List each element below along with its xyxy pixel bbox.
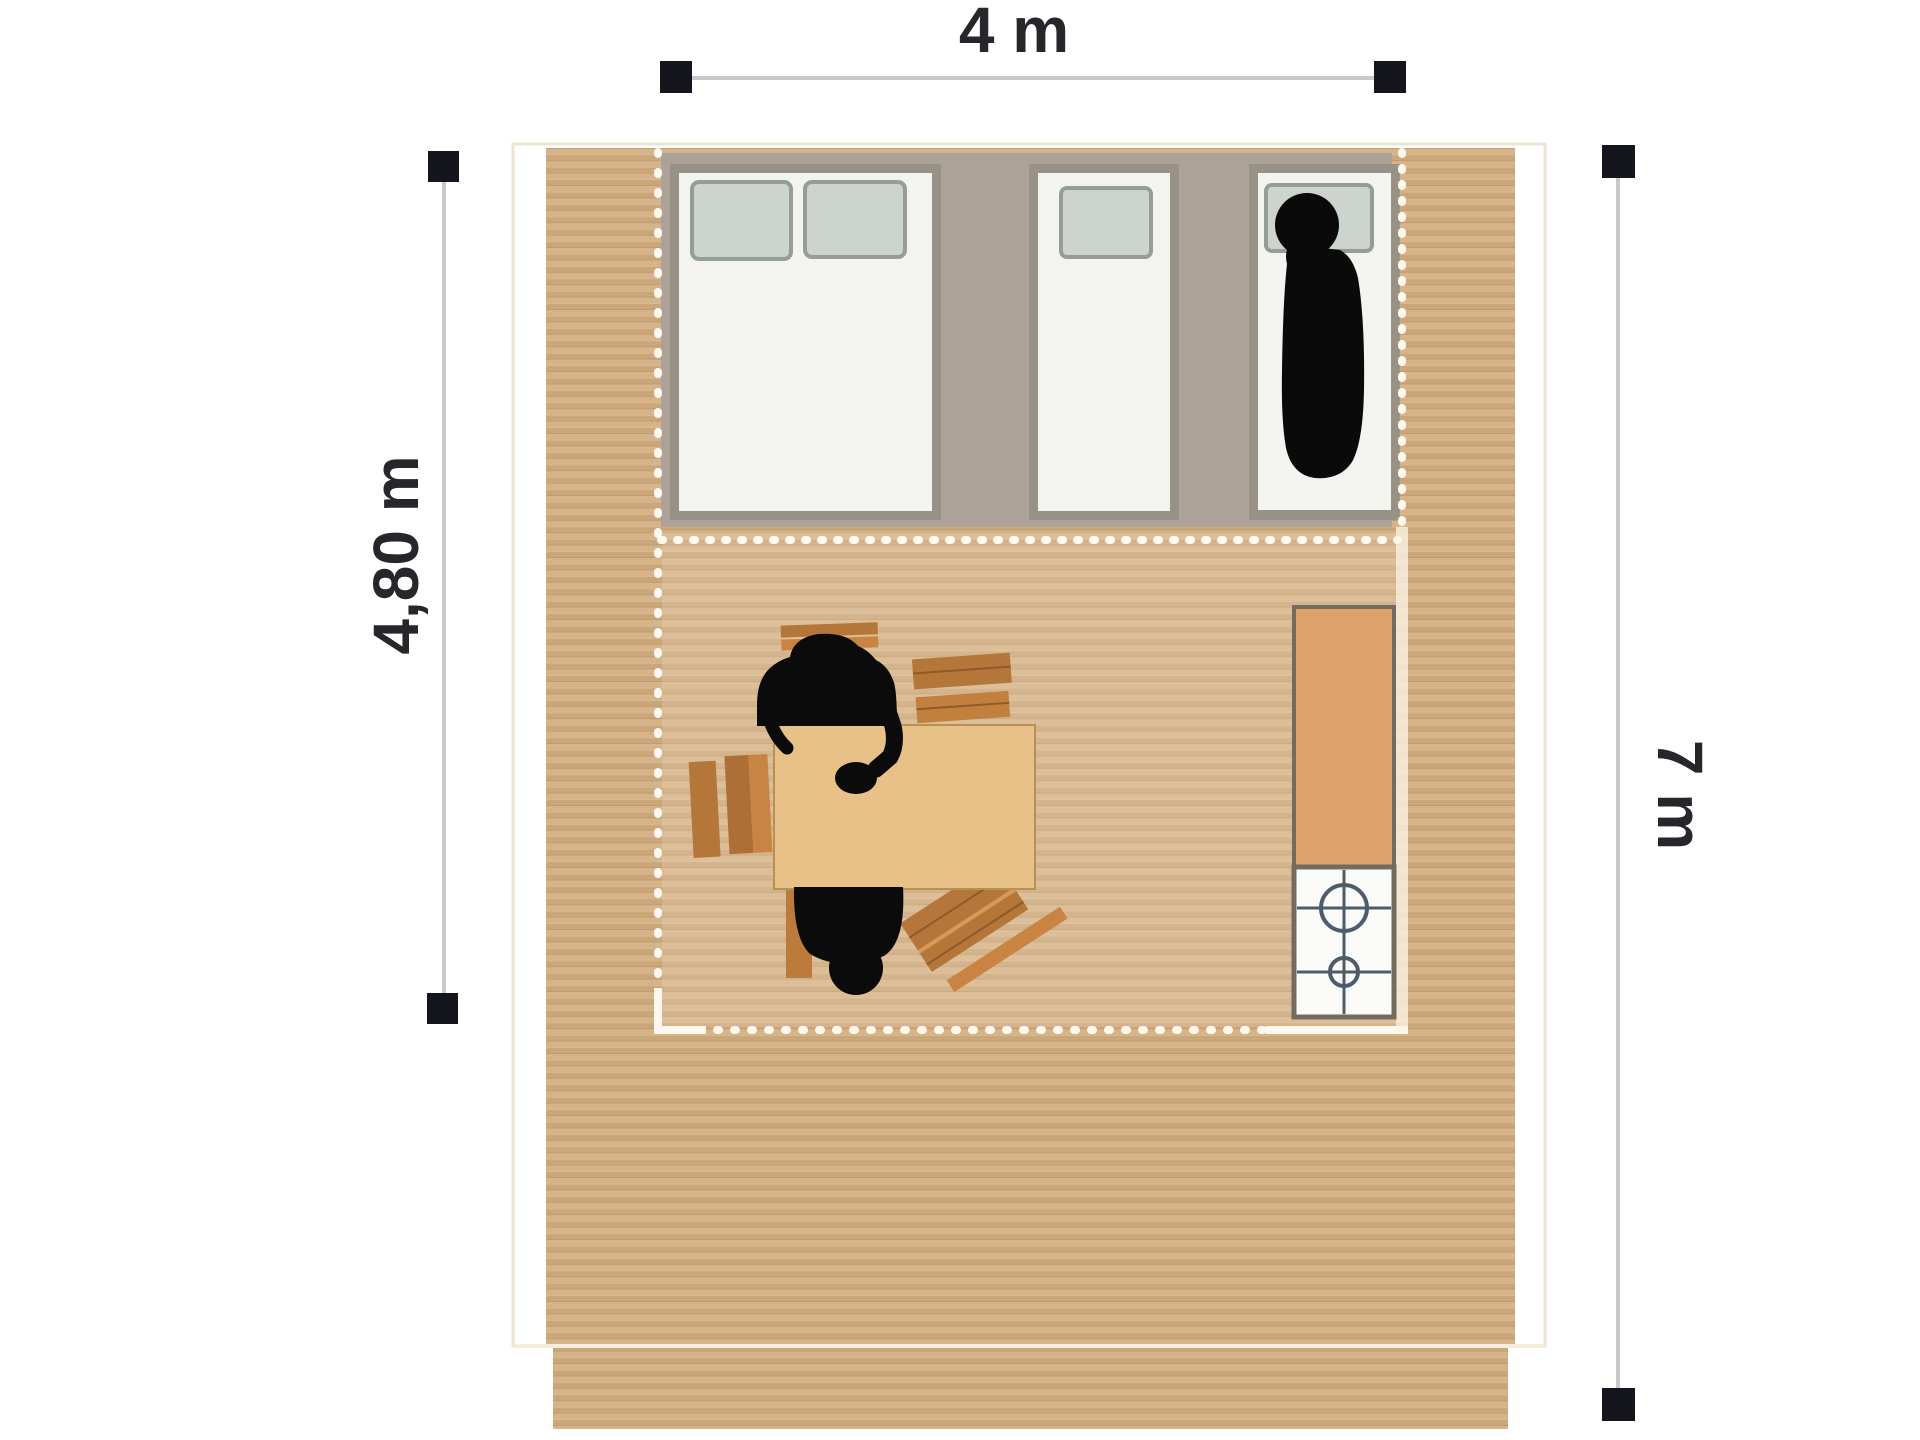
- svg-text:4 m: 4 m: [959, 0, 1069, 66]
- svg-text:7 m: 7 m: [1644, 740, 1716, 850]
- svg-text:4,80 m: 4,80 m: [360, 455, 432, 654]
